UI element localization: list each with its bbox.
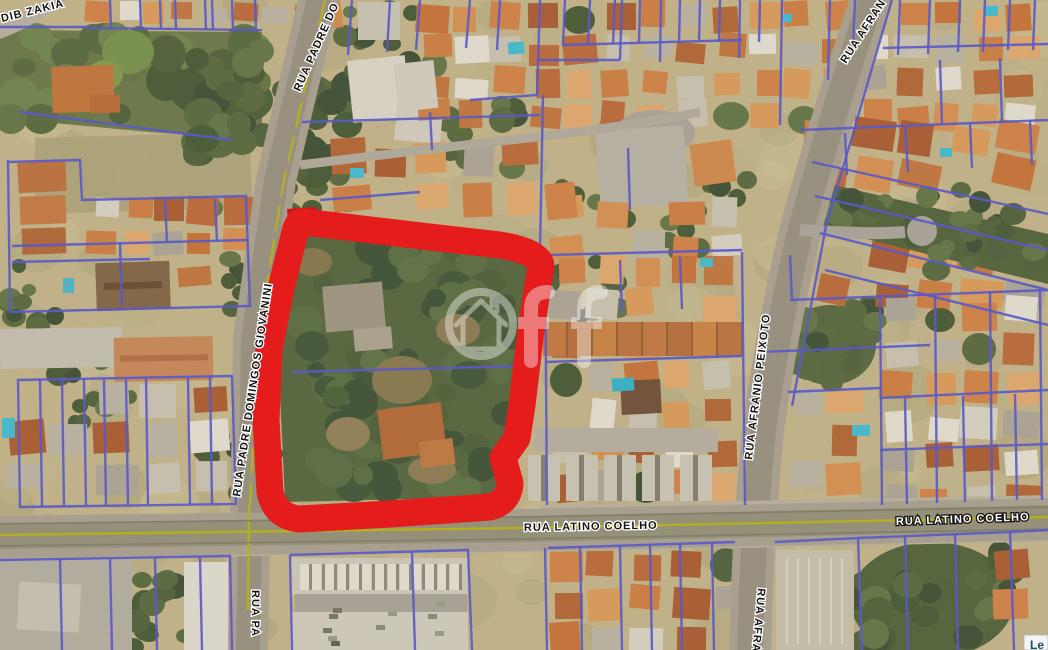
svg-text:RUA LATINO COELHO: RUA LATINO COELHO (524, 520, 658, 534)
svg-text:Le: Le (1030, 638, 1044, 650)
svg-text:RUA PA: RUA PA (249, 590, 261, 637)
